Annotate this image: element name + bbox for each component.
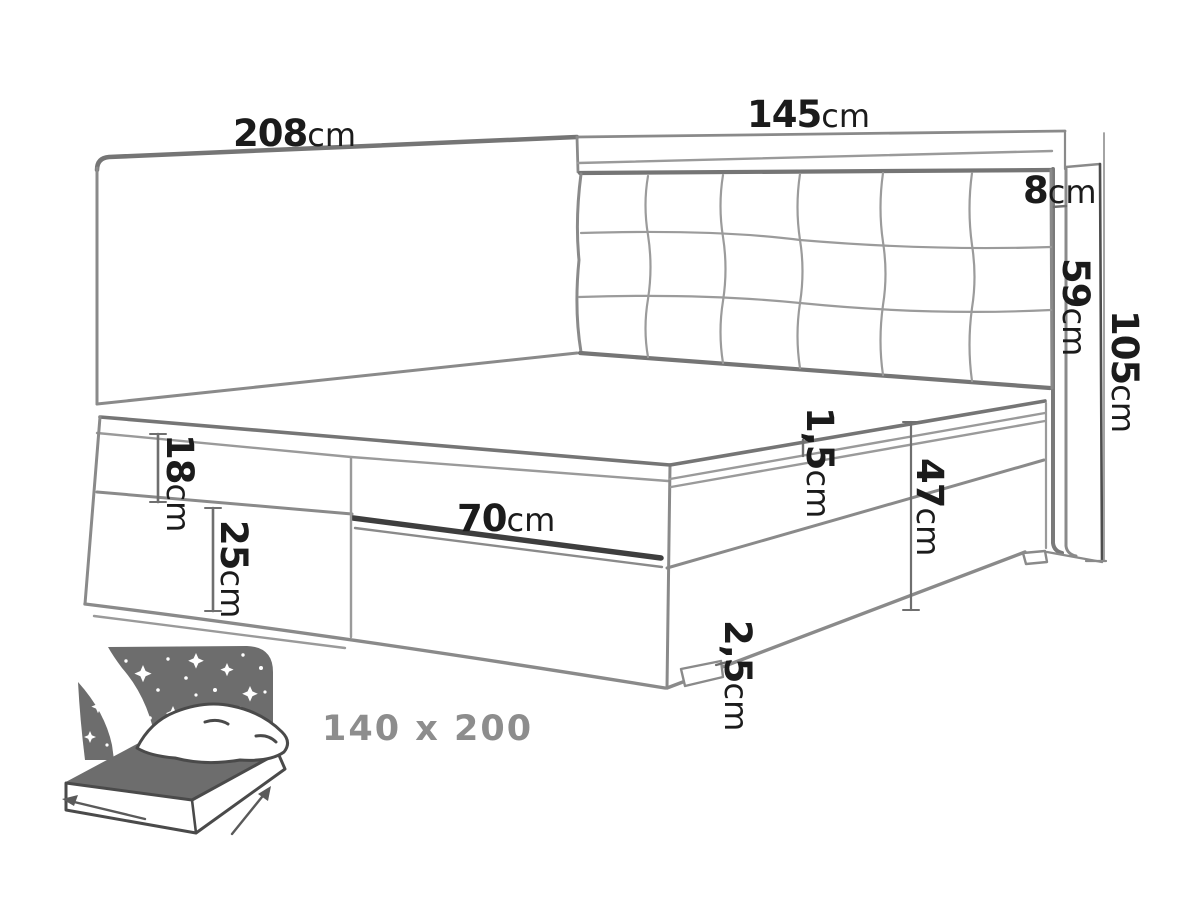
bed-size-icon	[62, 646, 288, 834]
dim-label-105: 105cm	[1103, 310, 1146, 433]
tuft-vertical-seams	[646, 173, 975, 381]
headboard-cushion	[577, 170, 1052, 388]
size-badge-label: 140 x 200	[322, 709, 533, 749]
dim-label-18: 18cm	[158, 434, 201, 532]
dim-label-145: 145cm	[747, 93, 870, 136]
dim-label-1-5: 1,5cm	[798, 407, 841, 518]
dim-label-2-5: 2,5cm	[716, 620, 759, 731]
bed-dimension-diagram: 208cm 145cm 8cm 59cm 105cm 18cm 25cm 70c…	[0, 0, 1200, 900]
dim-label-59: 59cm	[1054, 258, 1097, 356]
dimension-labels: 208cm 145cm 8cm 59cm 105cm 18cm 25cm 70c…	[158, 93, 1146, 731]
dim-label-47: 47cm	[908, 458, 951, 556]
dim-label-70: 70cm	[457, 497, 555, 540]
rear-foot	[1023, 551, 1047, 564]
dim-label-25: 25cm	[212, 520, 255, 618]
dim-label-8: 8cm	[1023, 169, 1097, 212]
diagram-drawing: 208cm 145cm 8cm 59cm 105cm 18cm 25cm 70c…	[0, 0, 1200, 900]
side-panel	[97, 137, 577, 404]
dim-label-208: 208cm	[233, 112, 356, 155]
